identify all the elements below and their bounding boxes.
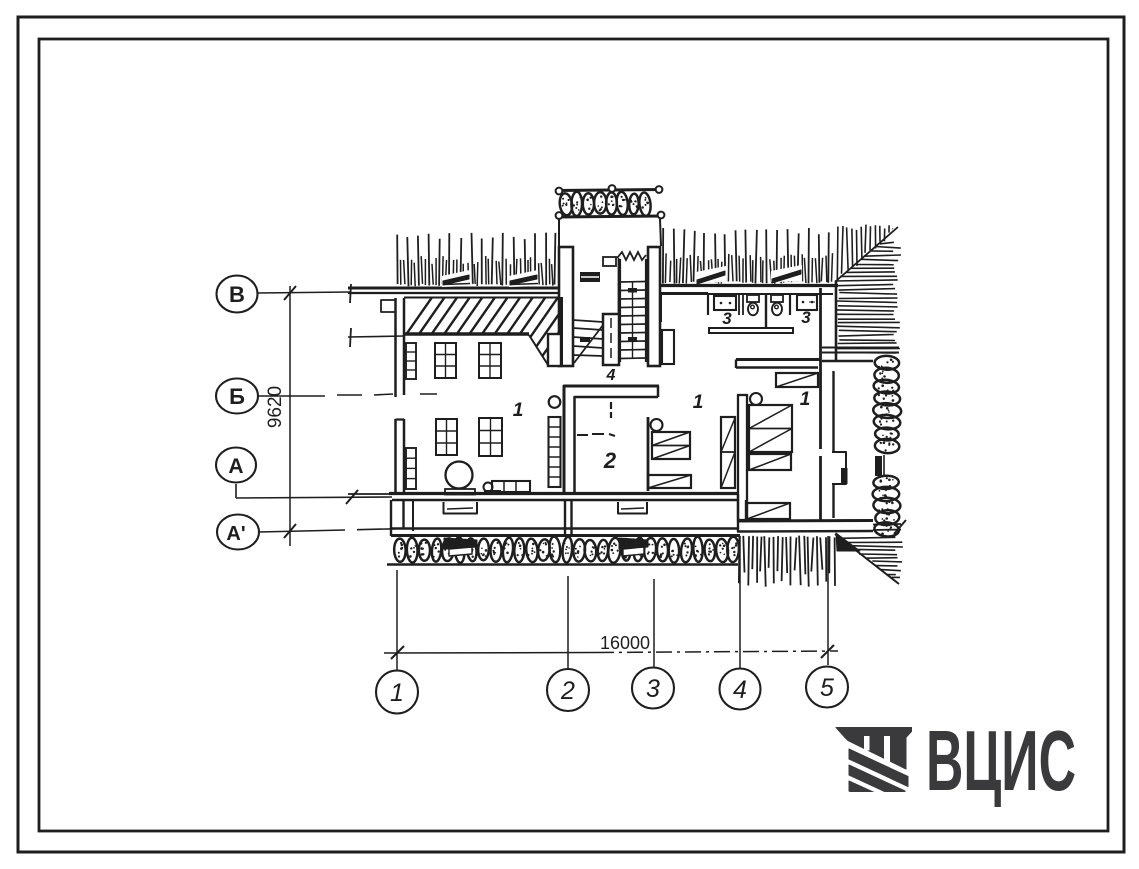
svg-text:16000: 16000 xyxy=(600,633,650,653)
svg-text:3: 3 xyxy=(646,675,660,703)
svg-text:1: 1 xyxy=(693,392,704,413)
svg-text:Б: Б xyxy=(229,384,245,409)
svg-text:А: А xyxy=(228,455,243,478)
svg-text:2: 2 xyxy=(560,677,575,705)
svg-text:А': А' xyxy=(226,523,245,545)
svg-text:9620: 9620 xyxy=(265,386,286,428)
svg-text:3: 3 xyxy=(722,309,732,328)
svg-text:4: 4 xyxy=(733,676,747,704)
svg-text:3: 3 xyxy=(801,308,811,327)
svg-text:2: 2 xyxy=(603,448,617,473)
svg-text:1: 1 xyxy=(390,679,404,707)
svg-text:ВЦИС: ВЦИС xyxy=(926,714,1076,809)
svg-text:4: 4 xyxy=(606,367,616,384)
svg-text:1: 1 xyxy=(800,389,811,410)
svg-text:5: 5 xyxy=(820,674,834,702)
svg-text:В: В xyxy=(229,282,245,307)
svg-text:1: 1 xyxy=(513,400,524,421)
